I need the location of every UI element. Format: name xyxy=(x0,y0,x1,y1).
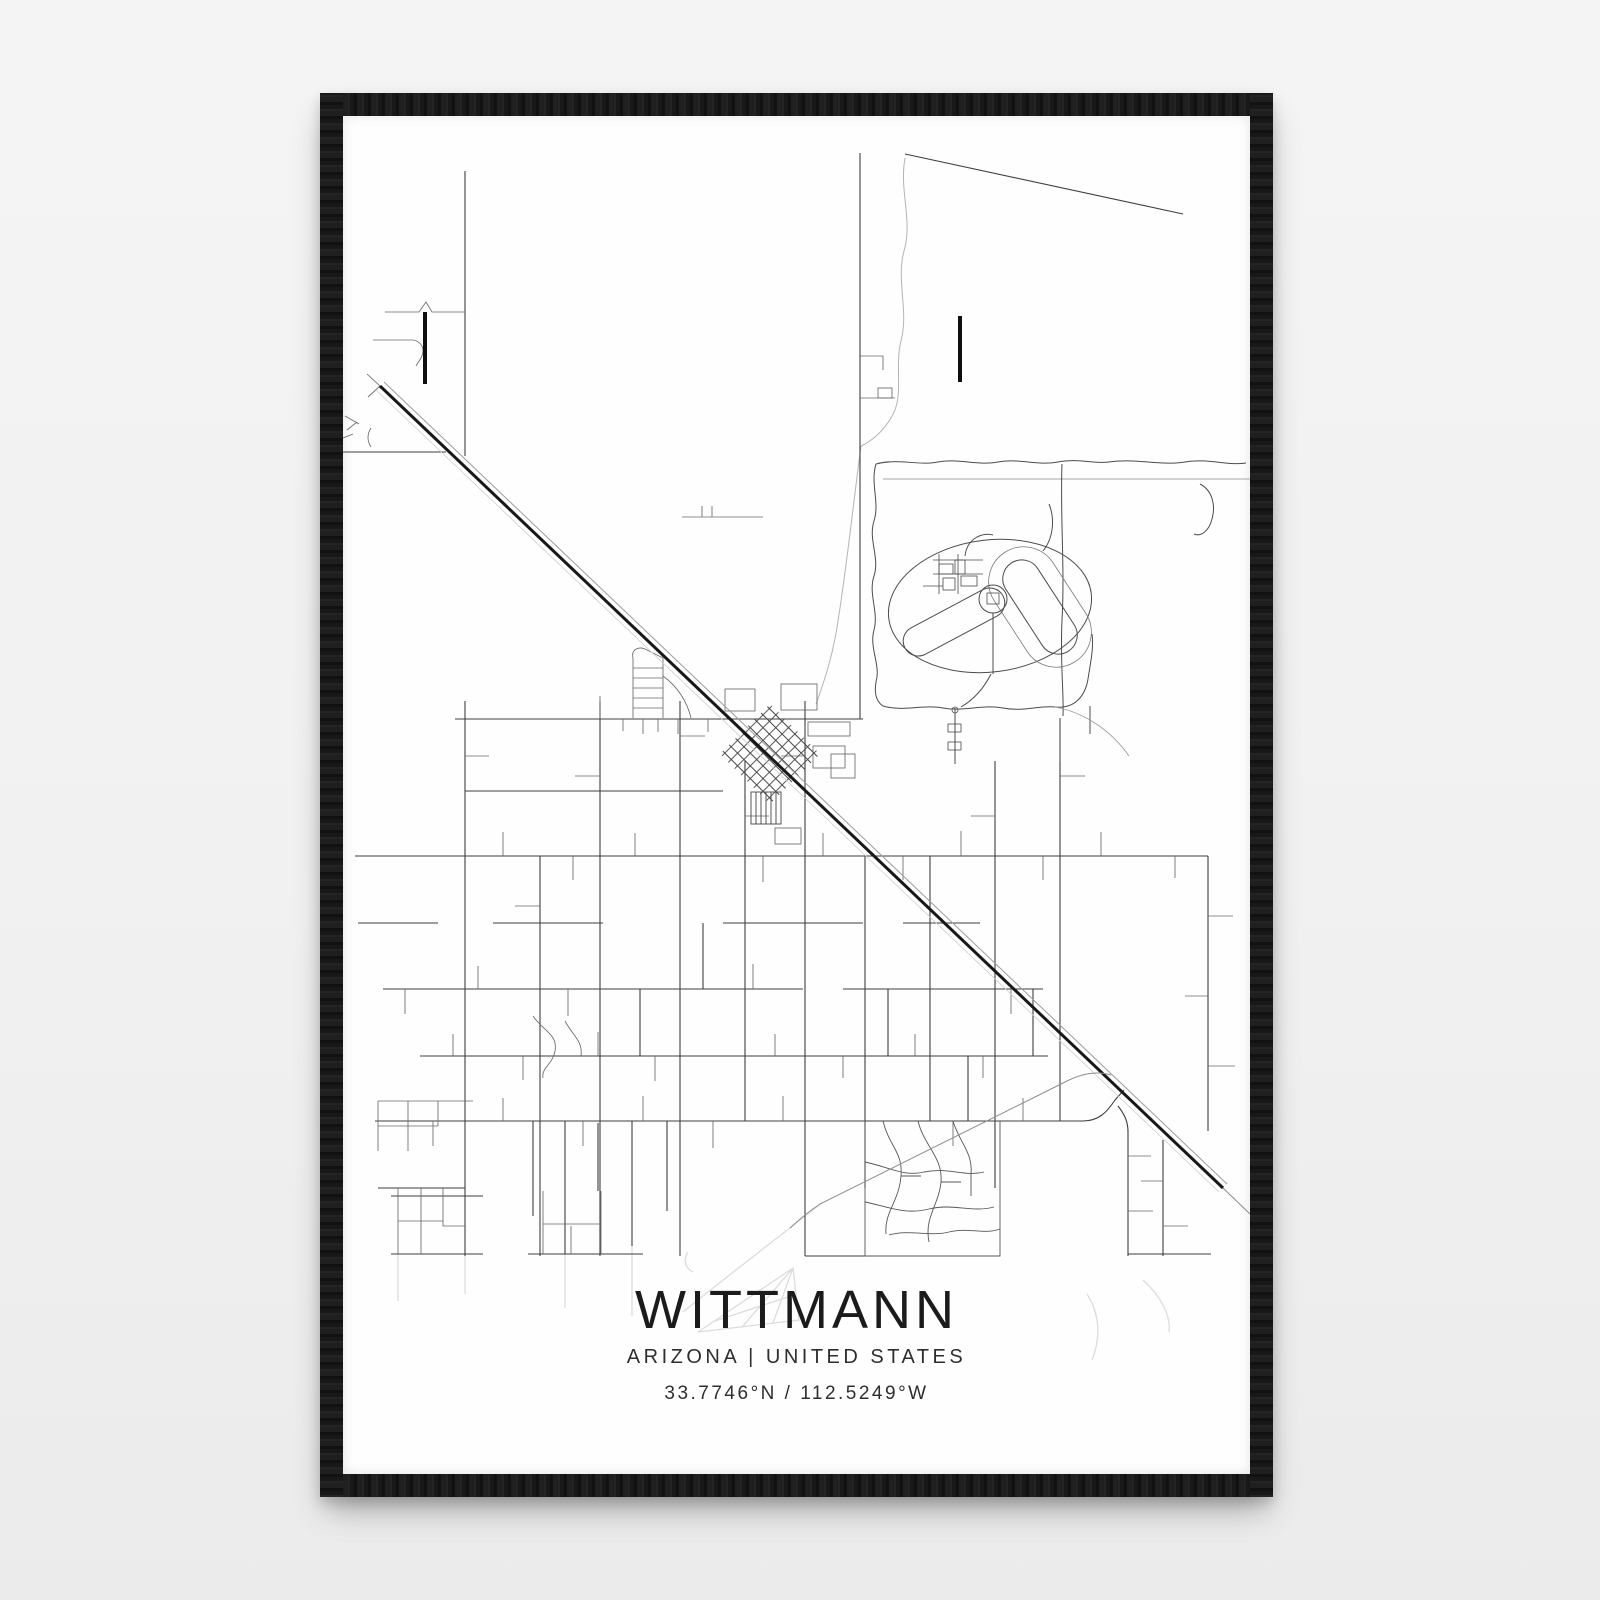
highway-continuation xyxy=(790,1073,1250,1228)
frame-right-molding xyxy=(1250,93,1273,1497)
poster-frame: WITTMANN ARIZONA | UNITED STATES 33.7746… xyxy=(320,93,1273,1497)
poster-subtitle: ARIZONA | UNITED STATES xyxy=(343,1347,1250,1368)
bold-road-segments xyxy=(425,312,960,384)
curvy-subdivision xyxy=(865,1121,1000,1256)
frame-left-molding xyxy=(320,93,343,1497)
poster-title: WITTMANN xyxy=(343,1282,1250,1339)
poster-coordinates: 33.7746°N / 112.5249°W xyxy=(343,1384,1250,1404)
racetrack-complex xyxy=(872,461,1250,764)
rural-street-grid xyxy=(343,153,1211,1256)
street-map-graphic xyxy=(343,116,1250,1474)
creek xyxy=(816,158,907,704)
diagonal-highway xyxy=(380,386,1223,1188)
frame-bottom-molding xyxy=(320,1474,1273,1497)
poster-paper: WITTMANN ARIZONA | UNITED STATES 33.7746… xyxy=(343,116,1250,1474)
frame-top-molding xyxy=(320,93,1273,116)
poster-product-shot: WITTMANN ARIZONA | UNITED STATES 33.7746… xyxy=(0,0,1600,1600)
